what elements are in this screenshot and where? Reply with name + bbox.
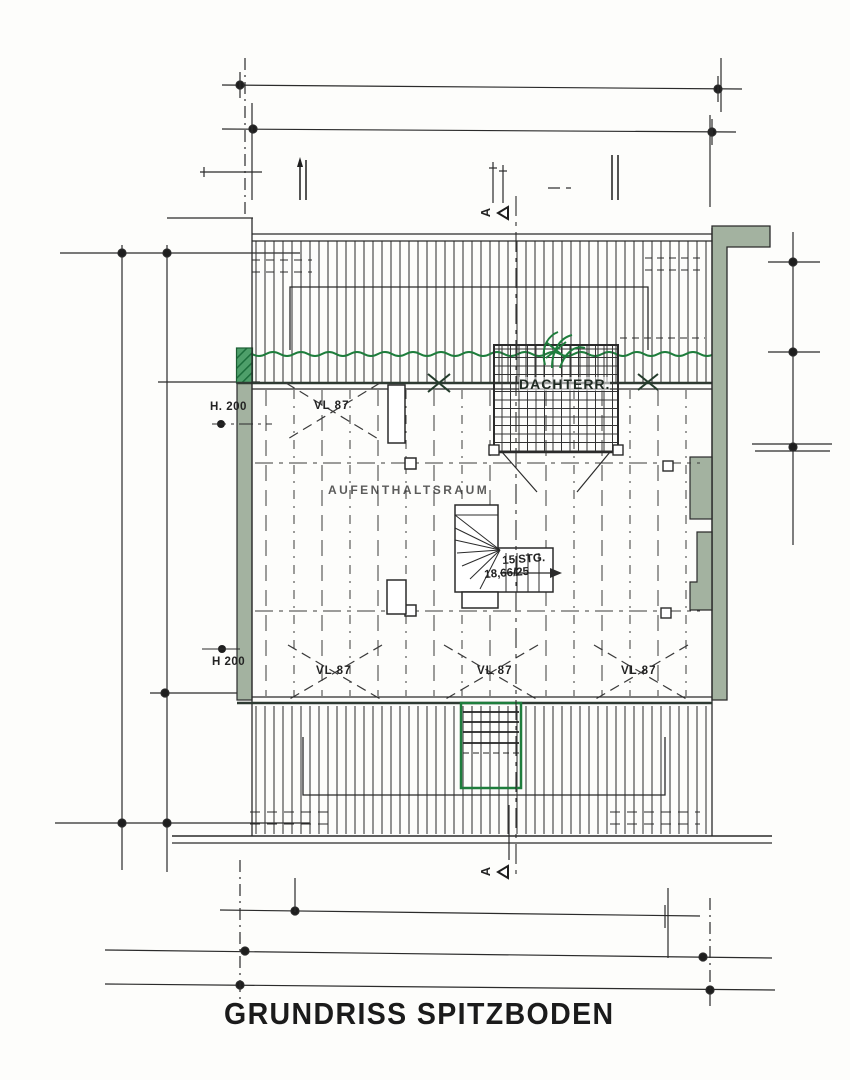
joist-label: VL 87 <box>316 666 351 678</box>
joist-label: VL 87 <box>621 666 656 678</box>
blueprint-page: GRUNDRISS SPITZBODEN DACHTERR. AUFENTHAL… <box>0 0 850 1080</box>
section-marker-bottom: A <box>479 867 492 876</box>
section-marker-top: A <box>479 208 492 217</box>
room-label: AUFENTHALTSRAUM <box>328 484 489 496</box>
terrace-label: DACHTERR. <box>519 377 610 391</box>
section-triangle-icon <box>498 207 508 219</box>
height-label-bottom: H 200 <box>212 657 245 669</box>
drawing-title: GRUNDRISS SPITZBODEN <box>224 998 614 1029</box>
floor-plan-drawing <box>0 0 850 1080</box>
joist-label: VL 87 <box>314 401 349 413</box>
section-triangle-icon <box>498 866 508 878</box>
building-plan <box>167 196 772 878</box>
height-label-top: H. 200 <box>210 402 247 414</box>
joist-label: VL 87 <box>477 666 512 678</box>
